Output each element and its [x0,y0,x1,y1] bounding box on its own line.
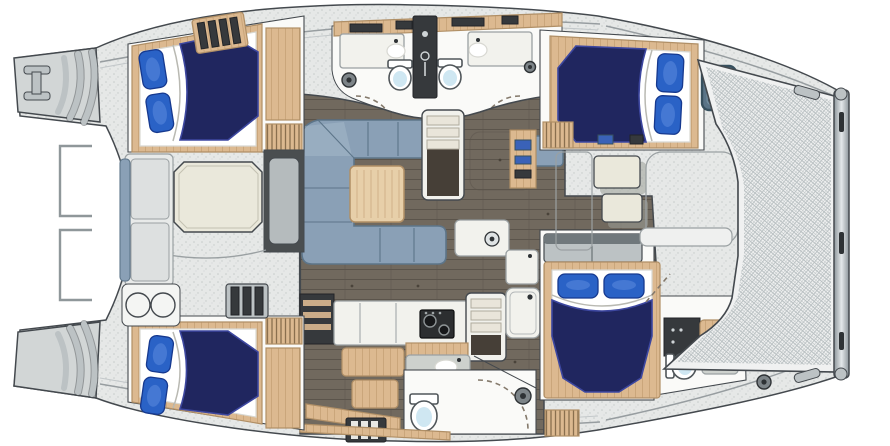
fridge-handle [528,254,532,258]
starboard-transom [14,230,100,398]
deck-fitting-dot [520,393,526,399]
port-companionway-stairs [422,110,464,200]
hatch-slat [243,287,251,315]
stair-tread [427,128,459,137]
table-top [350,166,404,222]
stove [420,310,454,338]
burner [439,325,449,335]
shelf-item [630,135,643,144]
stair-tread [471,299,501,308]
bench-back [544,234,642,244]
beam-end-cap [835,88,847,100]
cabin-bench [544,234,642,262]
companionway-hatch [192,12,249,54]
beam-slot [839,332,844,350]
companionway-hatch [226,284,268,318]
toilet-bowl-inner [393,71,407,87]
wet-bar-counter [455,220,509,256]
wardrobe-hangers [545,410,579,436]
toilet-starboard-head [410,394,438,431]
foredeck-seat [602,194,642,222]
galley-shelf [406,343,468,356]
stove-knob [425,312,428,315]
wardrobe-hangers [266,318,302,344]
toilet-port-head [388,60,412,90]
wardrobe [266,348,300,428]
floor-dot [417,285,420,288]
table-octagon [174,162,262,232]
cabinet-shelf [303,312,331,318]
stair-tread [471,323,501,332]
locker-window [350,24,382,32]
cabinet-dial [679,328,682,331]
toilet-bowl-inner [443,70,457,86]
cabinet-shelf [303,324,331,330]
stern-rail [60,230,92,300]
wardrobe [266,28,300,120]
beam-slot [839,112,844,132]
bench-backrest [120,159,130,281]
floor-dot [499,159,502,162]
floor-dot [547,213,550,216]
burner [424,315,436,327]
fitting-post [32,72,41,94]
cabinet-dial [671,328,674,331]
pillow-shine [612,280,636,290]
shower-pan-base [506,288,540,338]
shower-light [422,31,428,37]
cabinet-dial [671,340,674,343]
stair-tread [471,311,501,320]
nav-instrument [515,170,531,178]
port-transom [14,48,100,216]
cabinet-shelf [303,300,331,306]
wet-bar-drain [490,237,495,242]
toilet-bowl-inner [416,407,432,427]
starboard-aft-cabin [128,316,304,430]
refrigerator [506,250,538,284]
basin [387,44,405,58]
deck-fitting-dot [528,65,532,69]
pillow-shine [566,280,590,290]
stove-knob [432,312,435,315]
toilet-stbd-head [438,59,462,89]
cockpit-basin-unit [122,284,180,326]
shower-drain [527,294,532,299]
hatch-slat [255,287,263,315]
starboard-companionway-stairs [466,293,506,361]
wardrobe-hangers [543,122,573,148]
faucet [394,39,398,43]
shower-column [413,16,437,98]
beam-end-cap [835,368,847,380]
deck-fitting-dot [761,379,766,384]
stair-tread [427,140,459,149]
dinette-bench [342,348,404,376]
deck-fitting-dot [346,77,351,82]
faucet [476,38,480,42]
foredeck-seat [594,156,640,188]
wardrobe-hangers [266,124,302,150]
nav-instrument [515,140,531,150]
locker-window [502,16,518,24]
bulkhead-cabinet [269,158,299,244]
deck-locker-panel [640,228,732,246]
duvet [180,331,258,415]
bench-cushion [131,223,169,281]
cockpit-table [174,162,262,232]
wet-bar [455,220,509,256]
floor-dot [514,361,517,364]
bow-crossbeam [834,88,849,380]
stair-well-dark [427,146,459,196]
floor-plan-image: Catamaran yacht interior layout floor pl… [0,0,890,446]
beam-slot [839,232,844,254]
fridge-box [506,250,538,284]
faucet [457,358,461,362]
basin [469,43,487,57]
dinette-bench [352,380,398,408]
shelf-item [598,135,613,144]
hatch-slat [231,287,239,315]
sofa-corner-highlight [305,122,352,156]
duvet [552,300,652,392]
floor-dot [351,285,354,288]
floor-plan-canvas: Catamaran yacht interior layout floor pl… [0,0,890,446]
salon-table [350,166,404,222]
bench-cushion [131,159,169,219]
nav-instrument [515,156,531,164]
locker-window [452,18,484,26]
stove-knob [439,312,442,315]
stern-rail [60,146,92,216]
shower-pan [506,288,540,338]
locker-window [396,21,412,29]
stair-well-dark [471,335,501,355]
stair-tread [427,116,459,125]
